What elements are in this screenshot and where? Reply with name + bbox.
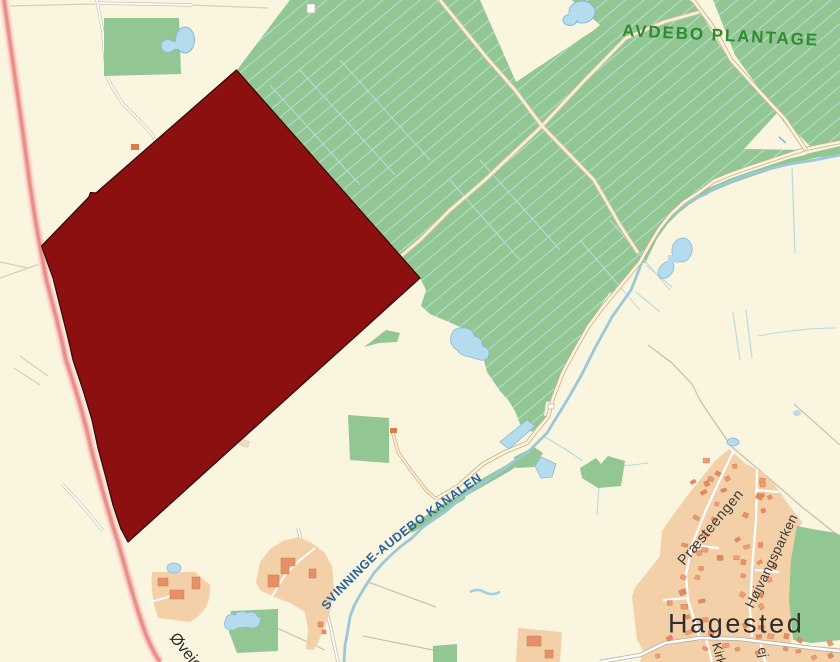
svg-text:Hagested: Hagested — [668, 609, 804, 639]
